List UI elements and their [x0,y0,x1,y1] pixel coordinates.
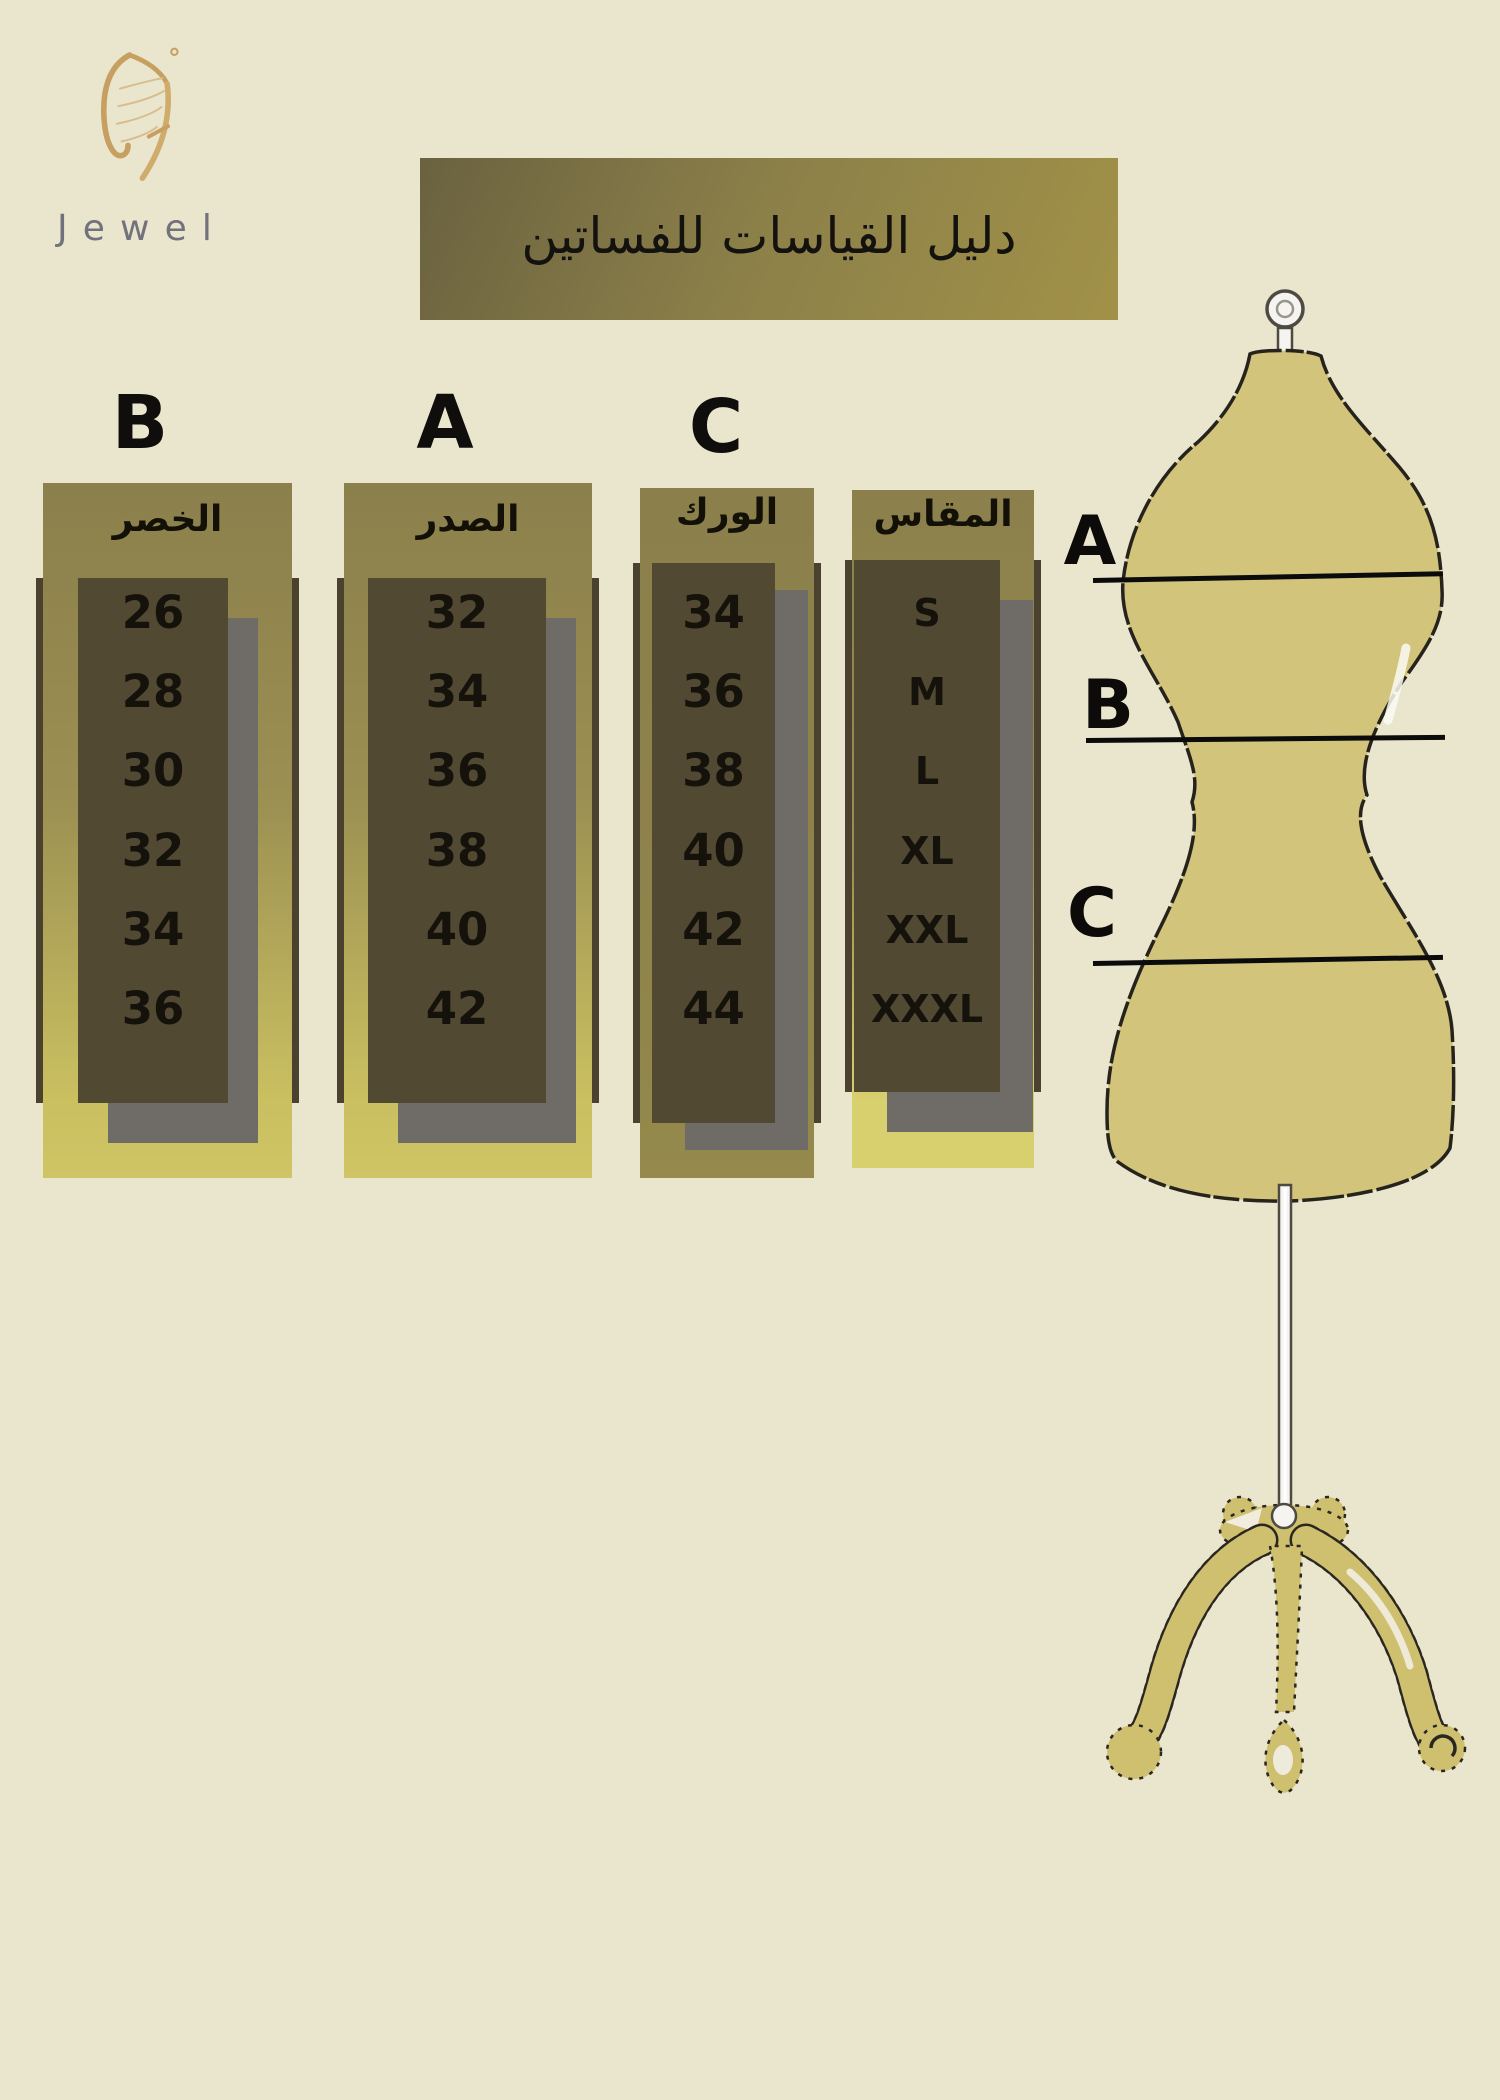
chest-value: 42 [368,981,546,1037]
size-value: S [854,585,1000,641]
column-edge-shadow [292,578,299,1103]
hip-value: 40 [652,823,775,879]
column-letter-a: A [385,386,505,460]
measure-label-c: C [1042,880,1142,948]
hip-value: 36 [652,664,775,720]
waist-value: 32 [78,823,228,879]
hip-values: 34 36 38 40 42 44 [652,585,775,1037]
waist-value: 30 [78,743,228,799]
tripod-base [1107,1497,1465,1793]
waist-column-header: الخصر [43,499,292,540]
waist-value: 26 [78,585,228,641]
title-banner: دليل القياسات للفساتين [420,158,1118,320]
chest-value: 38 [368,823,546,879]
page-title: دليل القياسات للفساتين [521,207,1016,265]
torso-shape [1107,350,1454,1201]
hip-value: 34 [652,585,775,641]
size-value: XXL [854,902,1000,958]
chest-column-header: الصدر [344,499,592,540]
size-value: L [854,743,1000,799]
chest-value: 36 [368,743,546,799]
column-edge-shadow [36,578,43,1103]
hip-value: 38 [652,743,775,799]
measure-label-b: B [1058,672,1158,740]
column-letter-c: C [656,390,776,464]
size-value: XXXL [854,981,1000,1037]
chest-value: 40 [368,902,546,958]
finial-knob-icon [1267,291,1303,356]
waist-value: 28 [78,664,228,720]
chest-value: 34 [368,664,546,720]
hip-value: 44 [652,981,775,1037]
size-value: XL [854,823,1000,879]
waist-value: 36 [78,981,228,1037]
chest-values: 32 34 36 38 40 42 [368,585,546,1037]
chest-column: الصدر 32 34 36 38 40 42 [344,483,592,1178]
measure-label-a: A [1040,508,1140,576]
waist-column: الخصر 26 28 30 32 34 36 [43,483,292,1178]
hip-value: 42 [652,902,775,958]
column-letter-b: B [80,386,200,460]
hip-column: الورك 34 36 38 40 42 44 [640,488,814,1178]
size-values: S M L XL XXL XXXL [854,585,1000,1037]
column-edge-shadow [592,578,599,1103]
chest-value: 32 [368,585,546,641]
size-column-header: المقاس [852,494,1034,535]
column-edge-shadow [633,563,640,1123]
waist-value: 34 [78,902,228,958]
column-edge-shadow [814,563,821,1123]
column-edge-shadow [337,578,344,1103]
brand-name: Jewel [42,208,242,249]
stand-pole [1279,1185,1291,1530]
dress-form-illustration [1050,250,1500,1850]
butterfly-wing-icon [72,26,192,204]
hip-column-header: الورك [640,492,814,533]
size-column: المقاس S M L XL XXL XXXL [852,490,1034,1168]
size-value: M [854,664,1000,720]
column-edge-shadow [1034,560,1041,1092]
waist-values: 26 28 30 32 34 36 [78,585,228,1037]
column-edge-shadow [845,560,852,1092]
